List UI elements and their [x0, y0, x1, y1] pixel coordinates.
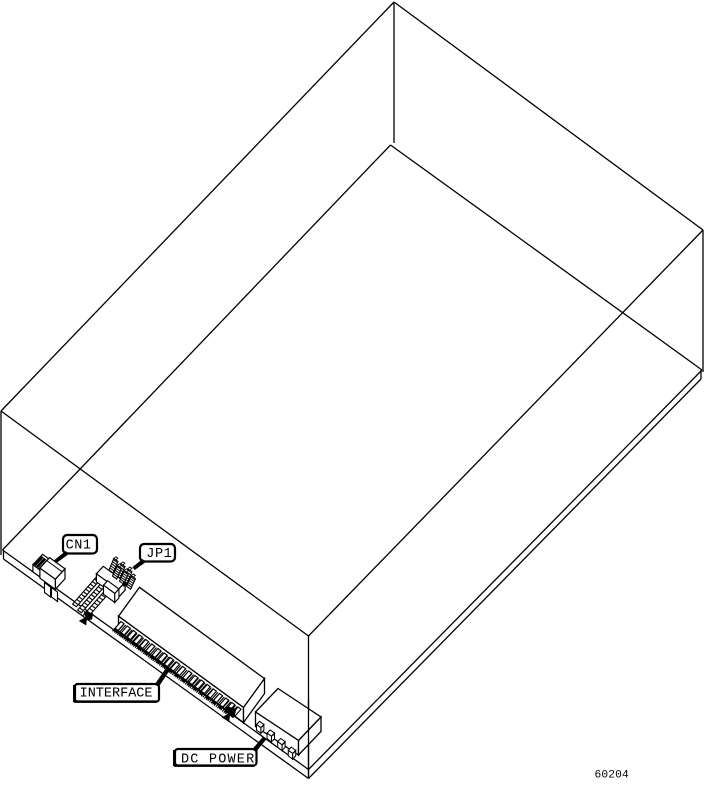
- svg-text:JP1: JP1: [146, 547, 172, 562]
- svg-text:INTERFACE: INTERFACE: [80, 686, 153, 701]
- svg-text:CN1: CN1: [66, 538, 92, 553]
- svg-text:DC POWER: DC POWER: [181, 753, 255, 768]
- svg-text:60204: 60204: [595, 769, 629, 781]
